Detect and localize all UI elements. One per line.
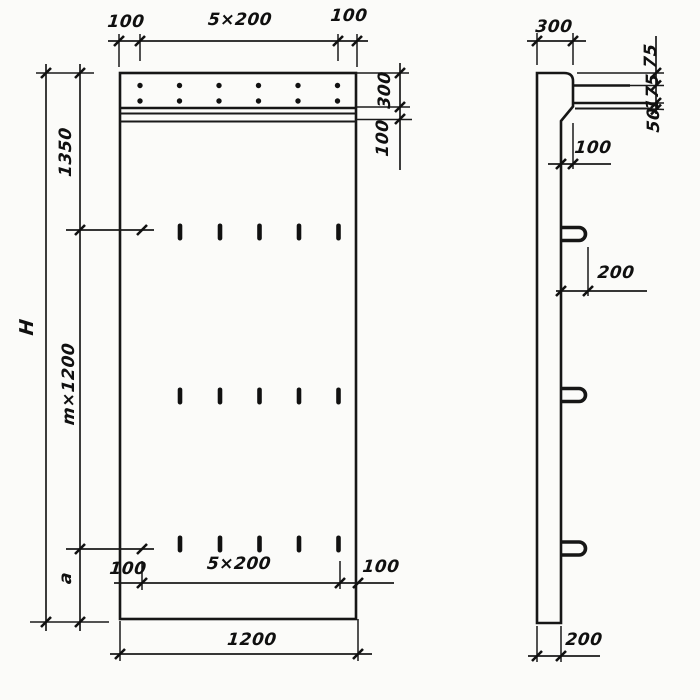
- front-view-outline: [120, 73, 356, 619]
- dim-side-top-width: 300: [534, 17, 573, 37]
- panel-drawing-sheet: 100 5×200 100 300 100 1350 m×1200 a H 10…: [0, 0, 700, 700]
- front-view-anchor-dots: [137, 83, 340, 104]
- slot-mark: [336, 388, 341, 405]
- front-panel-outline: [120, 73, 356, 619]
- anchor-dot: [335, 98, 340, 103]
- dim-height-lower: a: [56, 571, 76, 585]
- anchor-dot: [137, 98, 142, 103]
- dim-width-overall: 1200: [226, 630, 277, 650]
- dim-profile-step-2: 175: [643, 72, 663, 111]
- dim-height-upper: 1350: [56, 126, 76, 177]
- anchor-dot: [216, 98, 221, 103]
- slot-mark: [218, 536, 223, 553]
- slot-mark: [178, 536, 183, 553]
- dim-bottom-spacing: 5×200: [206, 554, 272, 574]
- dim-profile-step-3: 50: [644, 107, 664, 134]
- dim-height-overall: H: [16, 318, 38, 337]
- slot-mark: [218, 388, 223, 405]
- dim-band-height: 300: [375, 70, 395, 109]
- dim-bottom-right-edge: 100: [361, 557, 400, 577]
- slot-mark: [178, 388, 183, 405]
- dim-bottom-left-edge: 100: [108, 559, 147, 579]
- lifting-loop: [561, 542, 586, 555]
- dim-band-sub-height: 100: [373, 118, 393, 157]
- slot-mark: [297, 388, 302, 405]
- dim-profile-step-1: 75: [641, 43, 661, 70]
- anchor-dot: [335, 83, 340, 88]
- slot-mark: [178, 224, 183, 241]
- slot-mark: [297, 224, 302, 241]
- dim-top-left-edge: 100: [106, 12, 145, 32]
- front-view-slot-marks: [178, 224, 341, 553]
- dim-loop-projection: 200: [596, 263, 635, 283]
- anchor-dot: [295, 98, 300, 103]
- side-view-lifting-loops: [561, 228, 586, 556]
- slot-mark: [218, 224, 223, 241]
- lifting-loop: [561, 228, 586, 241]
- dim-ledge-offset: 100: [573, 138, 612, 158]
- slot-mark: [257, 224, 262, 241]
- drawing-linework: [0, 0, 700, 700]
- anchor-dot: [256, 83, 261, 88]
- anchor-dot: [177, 98, 182, 103]
- dim-panel-thickness: 200: [564, 630, 603, 650]
- slot-mark: [257, 388, 262, 405]
- dim-height-modules: m×1200: [59, 342, 79, 426]
- slot-mark: [257, 536, 262, 553]
- lifting-loop: [561, 389, 586, 402]
- anchor-dot: [177, 83, 182, 88]
- slot-mark: [336, 224, 341, 241]
- anchor-dot: [137, 83, 142, 88]
- anchor-dot: [216, 83, 221, 88]
- slot-mark: [297, 536, 302, 553]
- dim-top-spacing: 5×200: [207, 10, 273, 30]
- slot-mark: [336, 536, 341, 553]
- anchor-dot: [256, 98, 261, 103]
- dim-top-right-edge: 100: [329, 6, 368, 26]
- anchor-dot: [295, 83, 300, 88]
